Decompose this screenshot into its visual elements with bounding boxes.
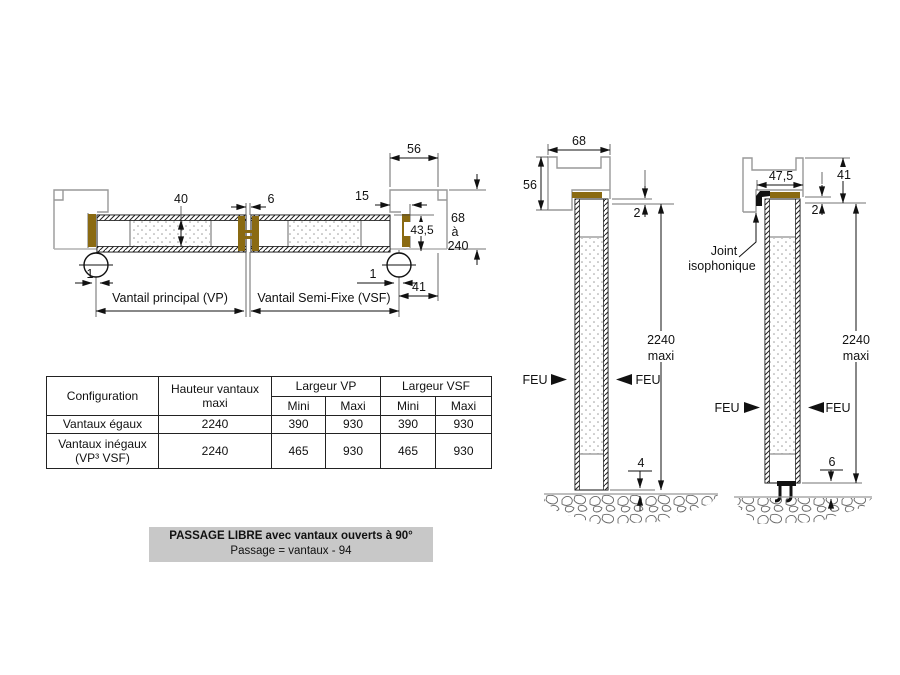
feu-arrow-right-inner (808, 402, 824, 413)
row-vp-mini: 390 (272, 416, 326, 434)
leaf-vp-core-infill (131, 221, 210, 246)
plan-dim-15: 15 (355, 189, 369, 203)
right-section-dim-6: 6 (829, 455, 836, 469)
meeting-stile-seals (238, 216, 259, 251)
hinge-axis-left (79, 253, 113, 277)
head-intumescent-seal-right (770, 192, 800, 198)
head-intumescent-seal (572, 192, 602, 198)
row-vsf-mini: 465 (381, 434, 436, 469)
caption-line-1: PASSAGE LIBRE avec vantaux ouverts à 90° (149, 529, 433, 544)
vertical-section-drop-seal: 47,5 41 2 Joint isophonique 2240 maxi 6 … (688, 158, 874, 524)
row-hauteur: 2240 (159, 434, 272, 469)
left-jamb-intumescent-seal (88, 214, 96, 247)
right-section-dim-2: 2 (812, 203, 819, 217)
plan-dim-56: 56 (407, 142, 421, 156)
drawing-canvas: 56 40 6 15 68 à 240 43,5 1 1 41 Vantail … (0, 0, 900, 675)
plan-dim-240: 240 (448, 239, 469, 253)
plan-dim-a: à (452, 225, 459, 239)
left-section-height: 2240 (647, 333, 675, 347)
row-config: Vantaux égaux (47, 416, 159, 434)
left-section-dim-68: 68 (572, 134, 586, 148)
plan-section: 56 40 6 15 68 à 240 43,5 1 1 41 Vantail … (54, 142, 486, 317)
leaf-vsf (251, 215, 390, 252)
plan-dim-41: 41 (412, 280, 426, 294)
row-vsf-maxi: 930 (436, 416, 492, 434)
hinge-axis-right (382, 253, 416, 277)
feu-label-right-inner: FEU (826, 401, 851, 415)
feu-label-right-outer: FEU (715, 401, 740, 415)
leaf-vsf-bottom-skin (251, 247, 390, 253)
joint-leader-line (739, 213, 756, 257)
feu-arrow-right-outer (744, 402, 760, 413)
plan-dim-43-5: 43,5 (410, 223, 434, 237)
dimensions-table: Configuration Hauteur vantaux maxi Large… (46, 376, 492, 469)
table-header-vsf-mini: Mini (381, 397, 436, 416)
leaf-vertical-right (765, 199, 800, 483)
plan-dim-1-right: 1 (370, 267, 377, 281)
left-section-height-suffix: maxi (648, 349, 674, 363)
right-section-height-suffix: maxi (843, 349, 869, 363)
joint-isophonique-label-2: isophonique (688, 259, 755, 273)
table-header-configuration: Configuration (47, 377, 159, 416)
feu-label-left-outer: FEU (523, 373, 548, 387)
table-header-hauteur: Hauteur vantaux maxi (159, 377, 272, 416)
table-header-largeur-vp: Largeur VP (272, 377, 381, 397)
plan-dim-6: 6 (268, 192, 275, 206)
joint-isophonique-label-1: Joint (711, 244, 738, 258)
table-header-vp-maxi: Maxi (326, 397, 381, 416)
left-section-dim-4: 4 (638, 456, 645, 470)
table-header-vp-mini: Mini (272, 397, 326, 416)
leaf-vertical-left (575, 199, 608, 490)
table-row: Vantaux égaux 2240 390 930 390 930 (47, 416, 492, 434)
table-header-largeur-vsf: Largeur VSF (381, 377, 492, 397)
row-vp-mini: 465 (272, 434, 326, 469)
feu-label-left-inner: FEU (636, 373, 661, 387)
feu-arrow-left-inner (616, 374, 632, 385)
left-section-dim-56: 56 (523, 178, 537, 192)
table-header-vsf-maxi: Maxi (436, 397, 492, 416)
row-vp-maxi: 930 (326, 416, 381, 434)
right-section-dim-41: 41 (837, 168, 851, 182)
plan-dim-1-left: 1 (87, 267, 94, 281)
leaf-vp (97, 215, 246, 252)
right-section-height: 2240 (842, 333, 870, 347)
leaf-vp-bottom-skin (97, 247, 246, 253)
vertical-section-head-seal: 68 56 2 2240 maxi 4 FEU FEU (523, 134, 719, 524)
row-hauteur: 2240 (159, 416, 272, 434)
door-technical-drawing: 56 40 6 15 68 à 240 43,5 1 1 41 Vantail … (0, 0, 900, 675)
label-vantail-semi-fixe: Vantail Semi-Fixe (VSF) (257, 291, 390, 305)
ground-rubble-left (544, 495, 718, 524)
passage-libre-caption: PASSAGE LIBRE avec vantaux ouverts à 90°… (149, 527, 433, 562)
feu-arrow-left-outer (551, 374, 567, 385)
row-vsf-maxi: 930 (436, 434, 492, 469)
table-row: Vantaux inégaux (VP³ VSF) 2240 465 930 4… (47, 434, 492, 469)
right-section-dim-47-5: 47,5 (769, 169, 793, 183)
plan-dim-40: 40 (174, 192, 188, 206)
label-vantail-principal: Vantail principal (VP) (112, 291, 228, 305)
leaf-vsf-core-infill (289, 221, 360, 246)
ground-rubble-right (734, 498, 872, 524)
left-section-dim-2: 2 (634, 206, 641, 220)
leaf-vsf-top-skin (251, 215, 390, 221)
caption-line-2: Passage = vantaux - 94 (149, 544, 433, 559)
leaf-vp-top-skin (97, 215, 246, 221)
row-vp-maxi: 930 (326, 434, 381, 469)
plan-dim-68: 68 (451, 211, 465, 225)
row-vsf-mini: 390 (381, 416, 436, 434)
row-config: Vantaux inégaux (VP³ VSF) (47, 434, 159, 469)
